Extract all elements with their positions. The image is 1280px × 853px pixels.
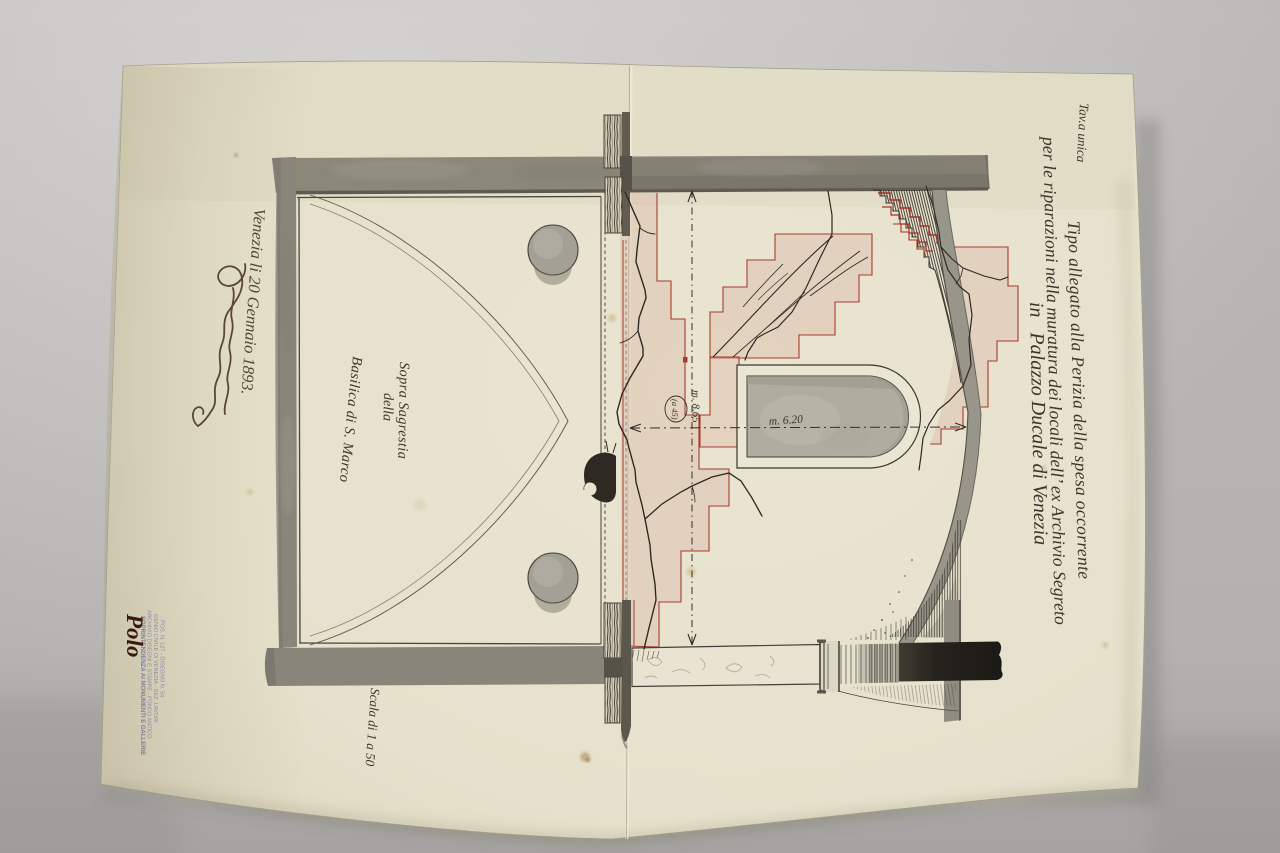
svg-text:(a 45): (a 45) (670, 399, 680, 420)
svg-text:Sopra Sagrestia: Sopra Sagrestia (394, 362, 412, 459)
svg-text:m. 6.20: m. 6.20 (768, 414, 803, 428)
svg-text:della: della (380, 393, 395, 421)
svg-text:Polo: Polo (122, 613, 147, 657)
svg-text:POS. N. 127 - DISEGNO N. 54: POS. N. 127 - DISEGNO N. 54 (159, 620, 165, 697)
svg-text:m. 8.65: m. 8.65 (690, 390, 702, 423)
svg-text:Tav.a unica: Tav.a unica (1074, 103, 1092, 163)
svg-text:GENIO CIVILE DI VENEZIA - SEZ.: GENIO CIVILE DI VENEZIA - SEZ. LAVORI (152, 614, 158, 723)
svg-text:in Palazzo Ducale di Venezia: in Palazzo Ducale di Venezia (1025, 302, 1052, 546)
